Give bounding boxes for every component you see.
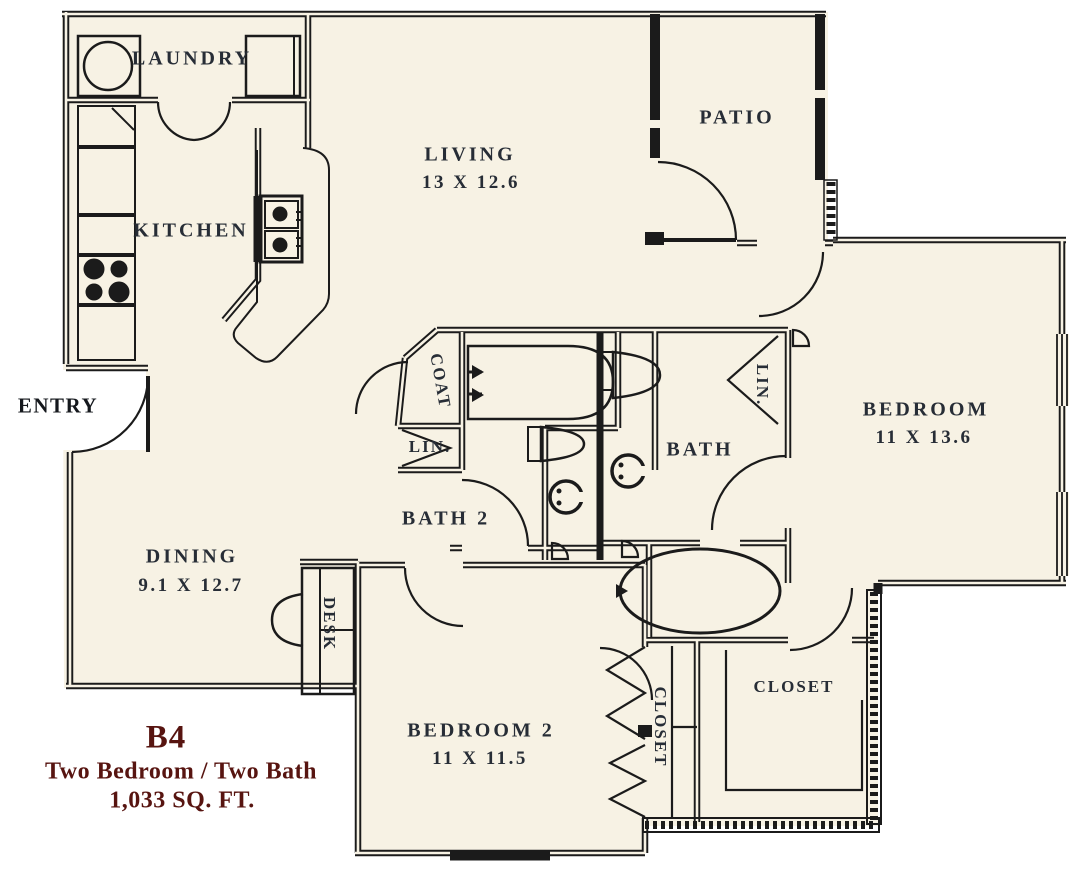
room-label-closet-bedroom2: CLOSET bbox=[650, 687, 670, 768]
patio-wall-break bbox=[649, 120, 661, 128]
plan-area: 1,033 SQ. FT. bbox=[109, 788, 254, 815]
room-dims-bedroom2: 11 X 11.5 bbox=[432, 748, 528, 770]
room-label-closet-walkin: CLOSET bbox=[754, 677, 835, 697]
room-label-desk: DESK bbox=[319, 597, 339, 651]
room-label-bedroom: BEDROOM bbox=[863, 399, 990, 422]
plan-code: B4 bbox=[146, 720, 187, 757]
room-label-linen-bedroom: LIN. bbox=[752, 364, 772, 406]
plan-type: Two Bedroom / Two Bath bbox=[45, 759, 317, 786]
room-label-patio: PATIO bbox=[699, 107, 774, 130]
room-label-laundry: LAUNDRY bbox=[132, 48, 252, 71]
room-label-bedroom2: BEDROOM 2 bbox=[407, 720, 555, 743]
room-label-linen-hall: LIN. bbox=[409, 437, 451, 457]
floor-plan-page: LAUNDRY KITCHEN LIVING 13 X 12.6 PATIO E… bbox=[0, 0, 1080, 878]
patio-wall-break-2 bbox=[814, 90, 826, 98]
room-label-dining: DINING bbox=[146, 546, 238, 569]
room-dims-bedroom: 11 X 13.6 bbox=[876, 427, 973, 449]
room-label-bath: BATH bbox=[666, 439, 733, 462]
room-label-entry: ENTRY bbox=[18, 394, 98, 419]
room-label-bath2: BATH 2 bbox=[402, 508, 490, 531]
room-dims-living: 13 X 12.6 bbox=[422, 172, 520, 194]
room-dims-dining: 9.1 X 12.7 bbox=[138, 575, 243, 597]
room-label-living: LIVING bbox=[424, 144, 515, 167]
room-label-kitchen: KITCHEN bbox=[133, 220, 248, 243]
